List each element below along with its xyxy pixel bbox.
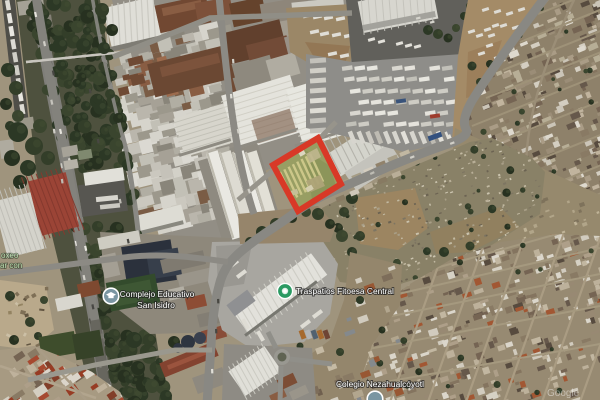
svg-text:Google: Google — [547, 388, 580, 399]
svg-text:oxeo: oxeo — [1, 251, 19, 260]
svg-text:Complejo Educativo: Complejo Educativo — [120, 289, 195, 299]
svg-text:San Isidro: San Isidro — [137, 300, 175, 310]
svg-text:ar con: ar con — [0, 261, 22, 270]
svg-text:Traspatios Fitoesa Central: Traspatios Fitoesa Central — [296, 286, 394, 296]
svg-text:Colegio Nezahualcóyotl: Colegio Nezahualcóyotl — [336, 379, 424, 389]
